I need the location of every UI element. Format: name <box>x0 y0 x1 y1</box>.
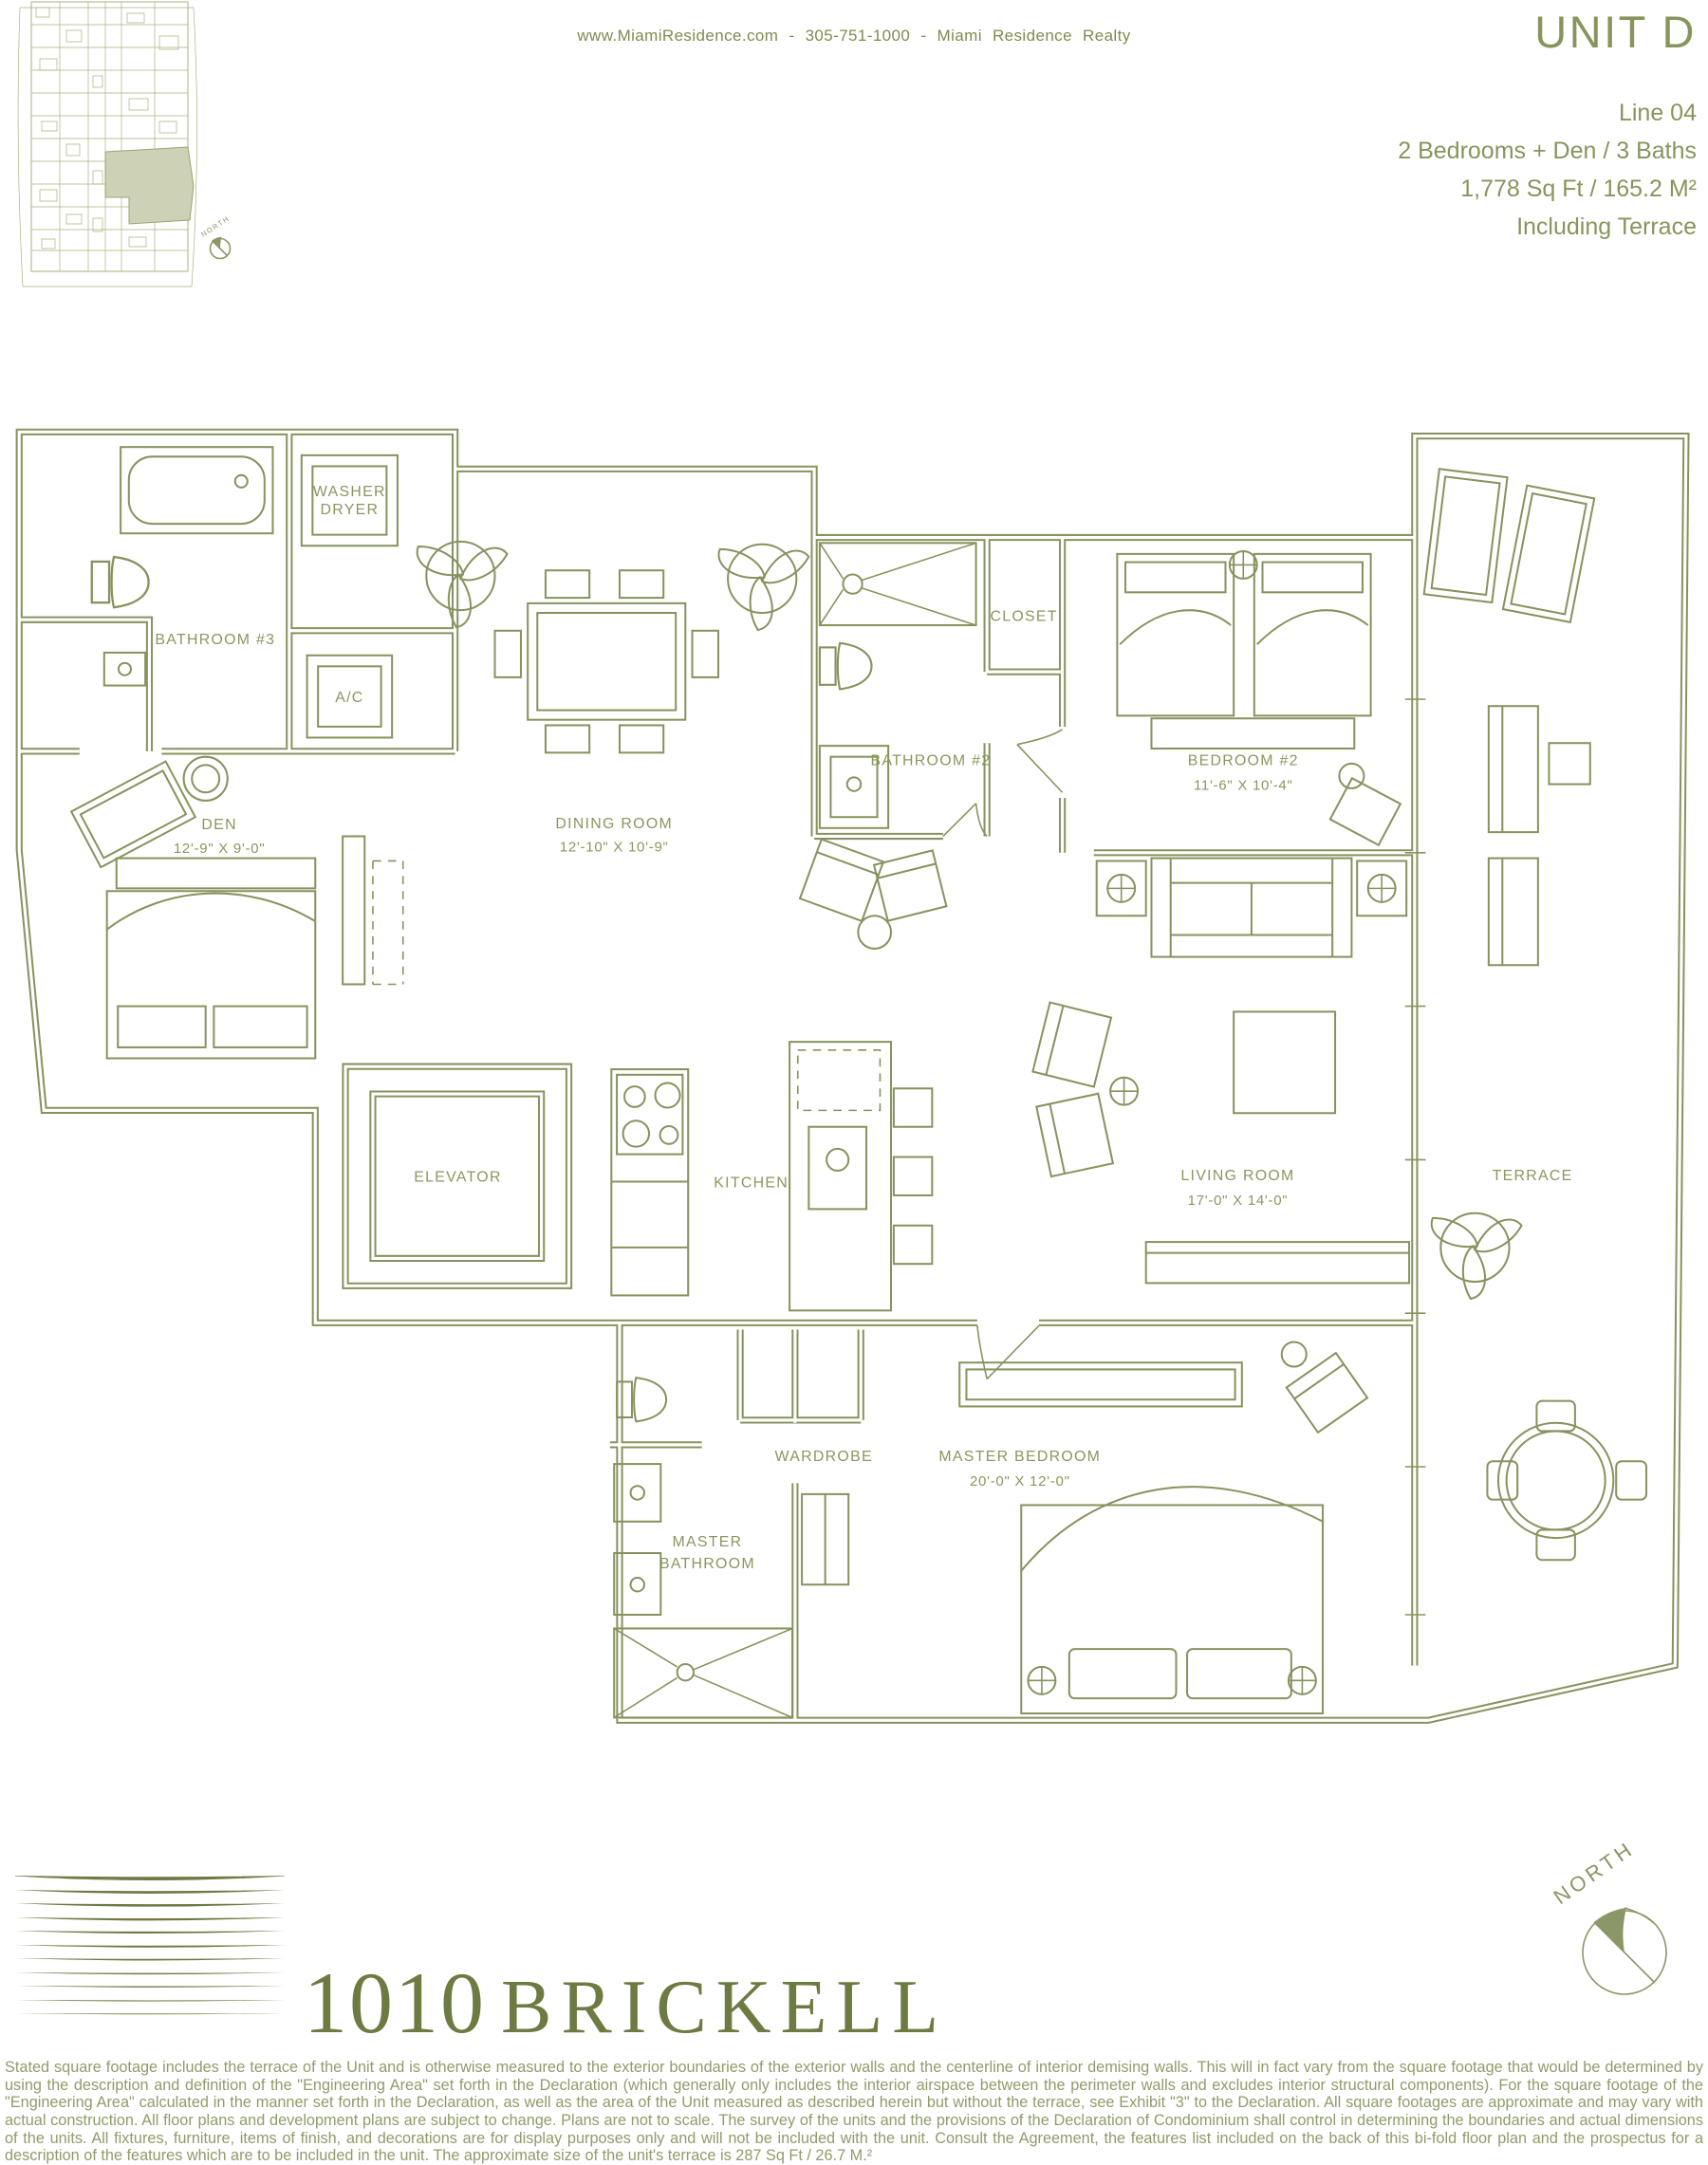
legal-disclaimer: Stated square footage includes the terra… <box>5 2059 1703 2165</box>
unit-info: UNIT D Line 04 2 Bedrooms + Den / 3 Bath… <box>1398 6 1697 246</box>
master-bed-icon <box>1021 1505 1323 1713</box>
armchair <box>1032 1003 1111 1087</box>
toilet-icon <box>617 1378 666 1421</box>
kitchen-island <box>789 1042 891 1310</box>
contact-line: www.MiamiResidence.com - 305-751-1000 - … <box>577 27 1130 46</box>
living-dims: 17'-0" X 14'-0" <box>1188 1193 1289 1209</box>
twin-bed-icon <box>1117 554 1234 715</box>
wardrobe-label: WARDROBE <box>775 1449 873 1465</box>
bathroom2-fixtures <box>820 543 976 827</box>
island-sink-icon <box>826 1149 848 1171</box>
terrace-label: TERRACE <box>1493 1168 1573 1184</box>
terrace-furniture <box>1424 469 1646 1560</box>
bathtub-icon <box>129 456 265 524</box>
lounge-chair <box>1424 469 1508 602</box>
living-label: LIVING ROOM <box>1180 1168 1294 1184</box>
den-furniture <box>71 757 315 1059</box>
bathroom3-fixtures <box>92 447 273 685</box>
1010-brickell-logo-icon <box>8 1871 292 2030</box>
sink-icon <box>119 663 131 675</box>
bedroom2-label: BEDROOM #2 <box>1188 752 1299 768</box>
kitchen-label: KITCHEN <box>714 1175 789 1191</box>
unit-area: 1,778 Sq Ft / 165.2 M² <box>1398 170 1697 208</box>
plant-icon <box>1427 1205 1521 1302</box>
pillow <box>1187 1649 1291 1698</box>
dining-table <box>528 603 685 720</box>
living-furniture <box>1032 859 1409 1284</box>
bedroom2-furniture <box>1117 551 1401 845</box>
keyplan-north-label: NORTH <box>199 214 231 239</box>
bedroom2-bench <box>1151 718 1354 749</box>
dining-partition <box>343 836 403 984</box>
logo-name: BRICKELL <box>501 1966 948 2049</box>
lounge-chair <box>1503 486 1594 622</box>
bathroom2-label: BATHROOM #2 <box>870 752 991 768</box>
building-keyplan: NORTH <box>8 0 264 294</box>
north-compass-icon: NORTH <box>1511 1839 1708 2028</box>
dining-set <box>495 570 718 752</box>
unit-bedrooms: 2 Bedrooms + Den / 3 Baths <box>1398 132 1697 170</box>
master-bedroom-dims: 20'-0" X 12'-0" <box>970 1473 1070 1490</box>
coffee-table <box>1234 1011 1335 1113</box>
keyplan-north-compass-icon: NORTH <box>199 214 231 259</box>
master-bath-label1: MASTER <box>672 1534 742 1550</box>
master-bath-label2: BATHROOM <box>659 1556 755 1572</box>
bathtub-surround <box>121 447 272 533</box>
bar-stool <box>894 1157 932 1195</box>
bedroom2-dims: 11'-6" X 10'-4" <box>1194 777 1293 793</box>
side-table <box>1339 764 1364 788</box>
hallway-chairs <box>800 840 946 949</box>
terrace-sofa <box>1489 859 1538 966</box>
toilet-icon <box>92 557 149 607</box>
terrace-table <box>1549 743 1589 784</box>
1010-brickell-wordmark: 1010BRICKELL <box>304 1952 948 2053</box>
bar-stool <box>894 1226 932 1264</box>
unit-details: Line 04 2 Bedrooms + Den / 3 Baths 1,778… <box>1398 94 1697 246</box>
side-table <box>858 916 891 949</box>
side-table <box>1110 1078 1138 1105</box>
closet-label: CLOSET <box>990 609 1057 625</box>
bedroom2-chair <box>1330 778 1401 844</box>
washer-dryer-closet: WASHER DRYER <box>302 455 398 546</box>
terrace-sofa <box>1489 706 1538 832</box>
ceiling-fixture-icon <box>1289 1667 1316 1694</box>
floorplan: BATHROOM #3 WASHER DRYER A/C DEN 12'-9" … <box>0 425 1708 1741</box>
den-chair <box>184 757 228 801</box>
end-table <box>1357 860 1406 916</box>
floorplan-flyer: { "header": { "contact": "www.MiamiResid… <box>0 0 1708 2156</box>
den-headboard <box>117 859 315 889</box>
bathtub-drain <box>235 475 248 488</box>
side-table <box>1282 1342 1307 1367</box>
den-pillow <box>213 1007 306 1047</box>
unit-title: UNIT D <box>1398 6 1697 58</box>
pillow <box>1069 1649 1177 1698</box>
armchair <box>1036 1094 1113 1176</box>
toilet-icon <box>820 643 872 690</box>
sink-cabinet <box>104 653 145 686</box>
master-shower-icon <box>614 1628 792 1717</box>
plant-icon <box>715 536 808 633</box>
unit-line: Line 04 <box>1398 94 1697 132</box>
terrace-dining-set <box>1487 1401 1646 1561</box>
dryer-label: DRYER <box>320 502 379 518</box>
dining-dims: 12'-10" X 10'-9" <box>560 839 669 855</box>
den-bed-icon <box>107 891 316 1058</box>
compass-north-label: NORTH <box>1550 1839 1639 1909</box>
den-pillow <box>118 1007 205 1047</box>
keyplan-unit-highlight <box>105 147 194 224</box>
washer-label: WASHER <box>313 484 386 500</box>
island-sink-cabinet <box>808 1127 866 1210</box>
ac-label: A/C <box>335 690 363 706</box>
ac-closet: A/C <box>307 656 393 738</box>
dining-label: DINING ROOM <box>555 816 673 832</box>
master-bedroom-label: MASTER BEDROOM <box>938 1449 1101 1465</box>
den-dims: 12'-9" X 9'-0" <box>174 841 266 857</box>
ceiling-fixture-icon <box>1028 1667 1055 1694</box>
bathroom3-label: BATHROOM #3 <box>155 632 275 648</box>
twin-bed-icon <box>1254 554 1371 715</box>
bar-stool <box>894 1088 932 1126</box>
keyplan-building-grid <box>31 2 188 271</box>
end-table <box>1097 860 1146 916</box>
master-bedroom-furniture <box>959 1342 1367 1713</box>
logo-number: 1010 <box>304 1954 486 2051</box>
unit-terrace-note: Including Terrace <box>1398 208 1697 246</box>
ceiling-fixture-icon <box>1230 551 1257 579</box>
plant-icon <box>413 533 507 630</box>
media-console <box>1146 1242 1409 1283</box>
overhead-cabinet <box>798 1050 881 1111</box>
sink-icon <box>847 777 861 790</box>
den-label: DEN <box>201 817 236 833</box>
elevator-label: ELEVATOR <box>414 1170 501 1186</box>
